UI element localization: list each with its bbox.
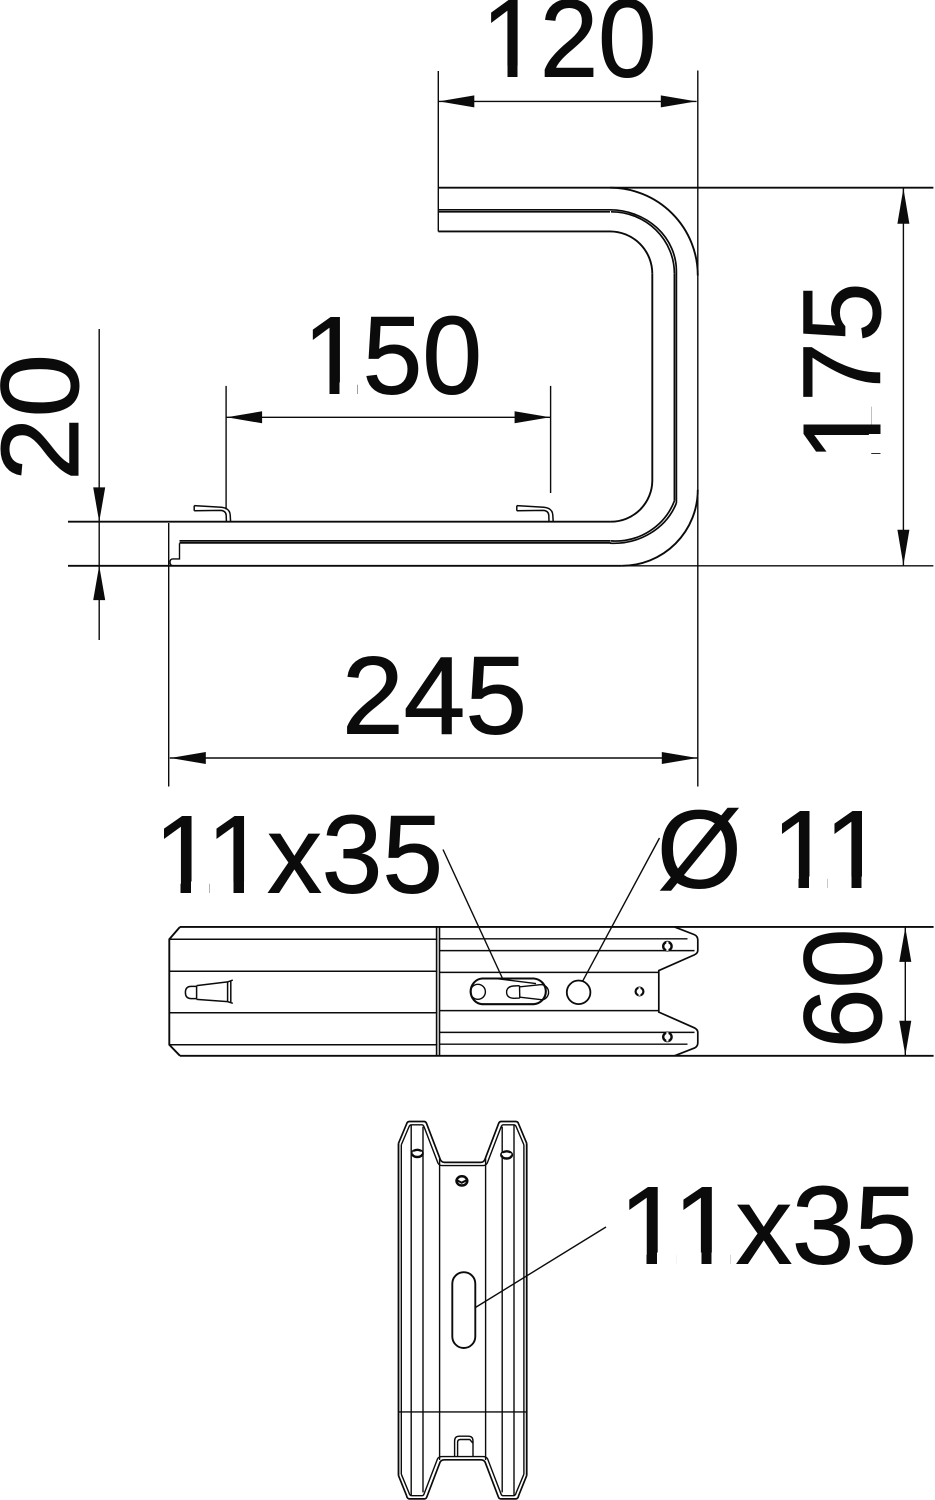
svg-text:120: 120 [482,0,657,101]
svg-text:245: 245 [342,635,527,758]
svg-text:175: 175 [781,283,904,462]
svg-text:20: 20 [0,354,102,481]
svg-text:11x35: 11x35 [154,794,443,917]
svg-text:60: 60 [782,929,905,1049]
svg-text:11x35: 11x35 [619,1165,917,1288]
svg-text:Ø 11: Ø 11 [657,789,885,912]
svg-text:150: 150 [303,294,482,417]
